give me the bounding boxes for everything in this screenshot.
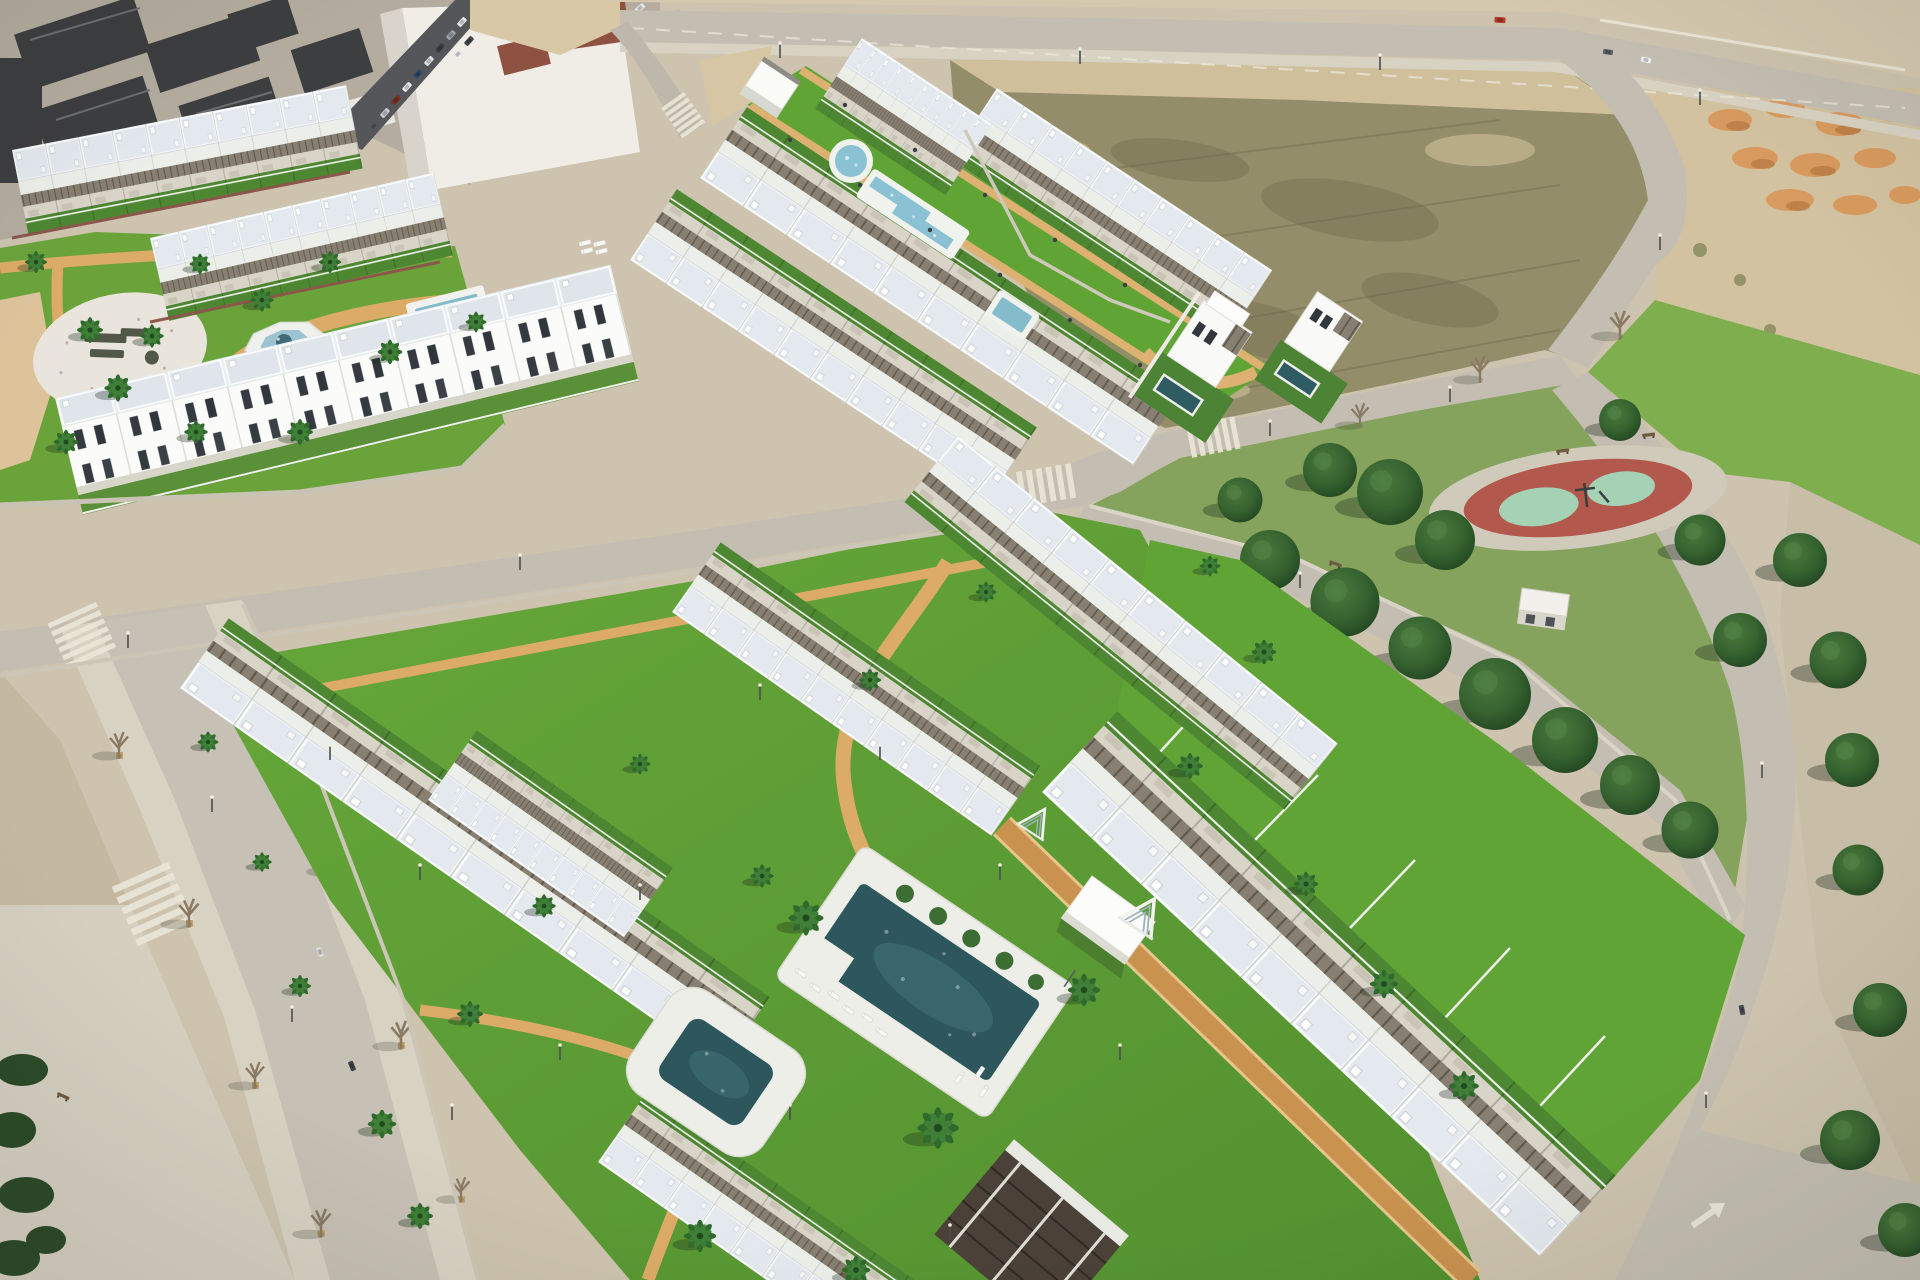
vignette-overlay <box>0 0 1920 1280</box>
aerial-scene <box>0 0 1920 1280</box>
aerial-render-screenshot <box>0 0 1920 1280</box>
